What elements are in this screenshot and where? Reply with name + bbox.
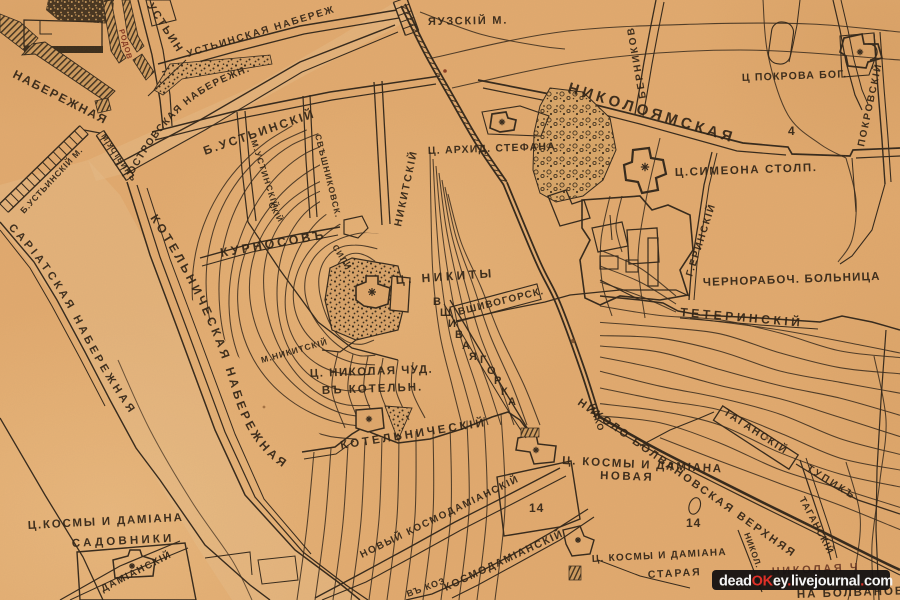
svg-text:deadOKey.livejournal.com: deadOKey.livejournal.com — [719, 574, 893, 590]
